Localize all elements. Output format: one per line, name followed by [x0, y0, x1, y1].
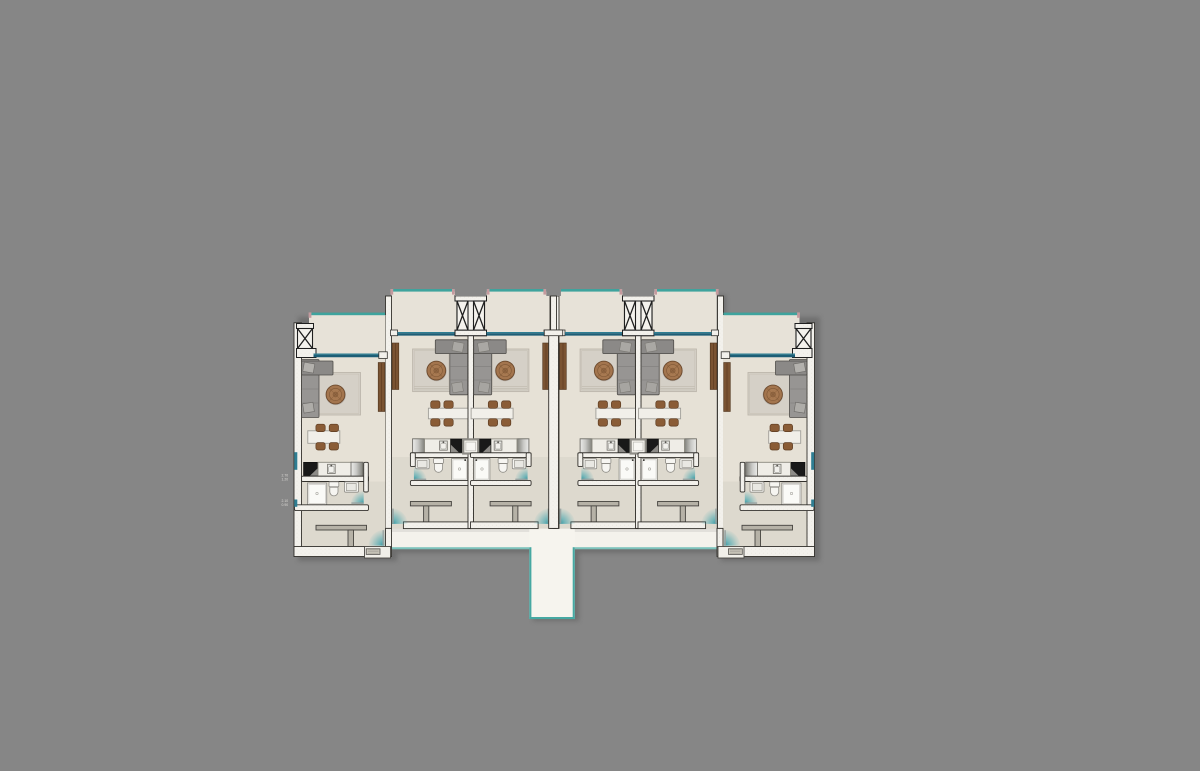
- svg-text:0.90: 0.90: [282, 503, 289, 507]
- svg-text:1.20: 1.20: [282, 477, 289, 481]
